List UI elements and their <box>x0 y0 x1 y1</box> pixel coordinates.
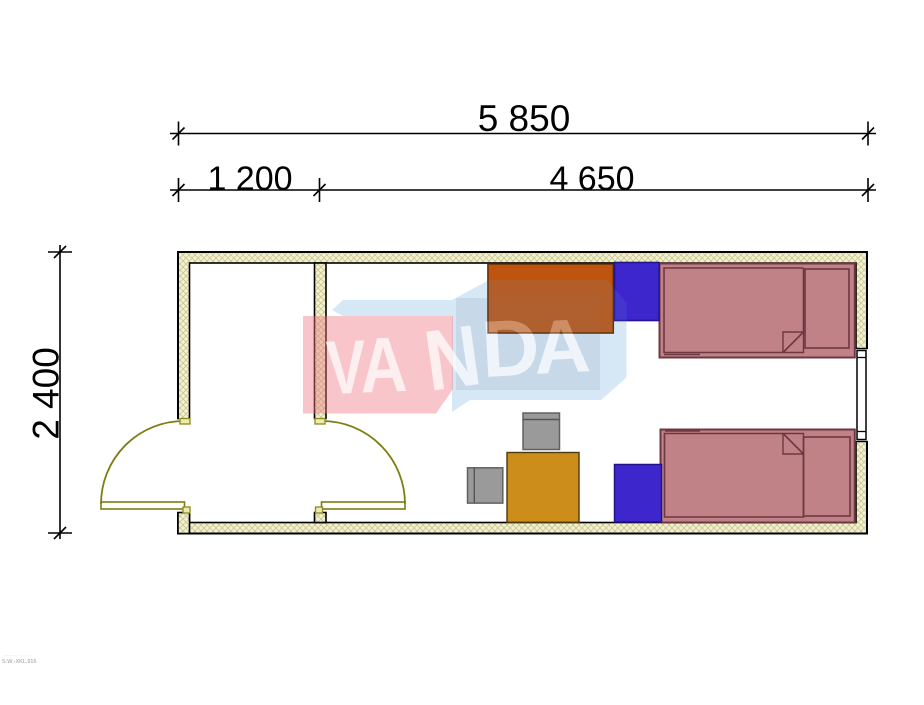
svg-text:5 850: 5 850 <box>478 98 571 139</box>
svg-text:2 400: 2 400 <box>26 347 67 440</box>
svg-text:S.W.-XKL.916: S.W.-XKL.916 <box>2 659 37 665</box>
svg-text:1 200: 1 200 <box>207 160 292 198</box>
svg-text:A: A <box>359 321 409 409</box>
svg-text:......... . .. . ...: ......... . .. . ... <box>3 652 31 658</box>
svg-text:4 650: 4 650 <box>549 160 634 198</box>
